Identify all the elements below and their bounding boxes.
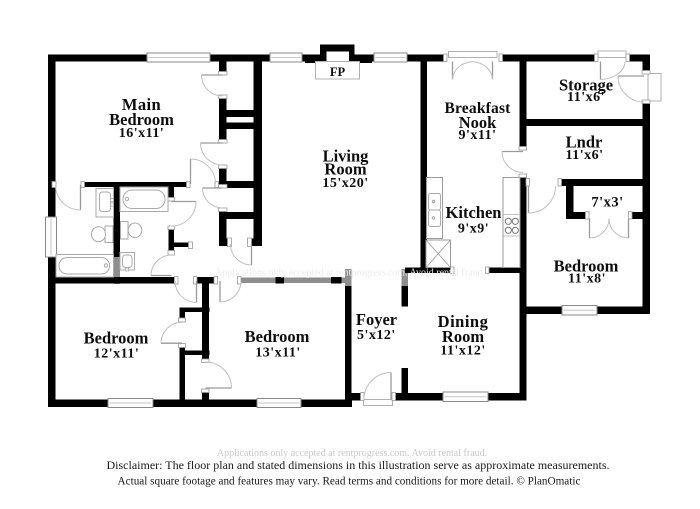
svg-text:7'x3': 7'x3' xyxy=(591,195,623,211)
svg-text:Disclaimer: The floor plan and: Disclaimer: The floor plan and stated di… xyxy=(107,458,610,472)
svg-text:Foyer: Foyer xyxy=(356,310,397,329)
svg-text:11'x6': 11'x6' xyxy=(565,148,603,163)
svg-text:FP: FP xyxy=(330,65,346,79)
svg-text:11'x6': 11'x6' xyxy=(567,90,605,105)
svg-text:16'x11': 16'x11' xyxy=(119,126,165,141)
svg-text:Bedroom: Bedroom xyxy=(84,329,149,348)
svg-text:15'x20': 15'x20' xyxy=(322,176,368,191)
svg-text:12'x11': 12'x11' xyxy=(94,347,140,362)
svg-text:Applications only accepted at: Applications only accepted at rentprogre… xyxy=(215,268,485,279)
svg-text:Kitchen: Kitchen xyxy=(446,203,502,222)
svg-text:9'x11': 9'x11' xyxy=(458,128,496,143)
svg-text:Actual square footage and feat: Actual square footage and features may v… xyxy=(118,476,581,488)
svg-text:9'x9': 9'x9' xyxy=(458,222,489,237)
svg-text:11'x12': 11'x12' xyxy=(440,344,486,359)
svg-text:11'x8': 11'x8' xyxy=(568,272,606,287)
svg-text:Bedroom: Bedroom xyxy=(245,327,310,346)
svg-text:5'x12': 5'x12' xyxy=(357,328,396,343)
svg-text:13'x11': 13'x11' xyxy=(255,346,301,361)
